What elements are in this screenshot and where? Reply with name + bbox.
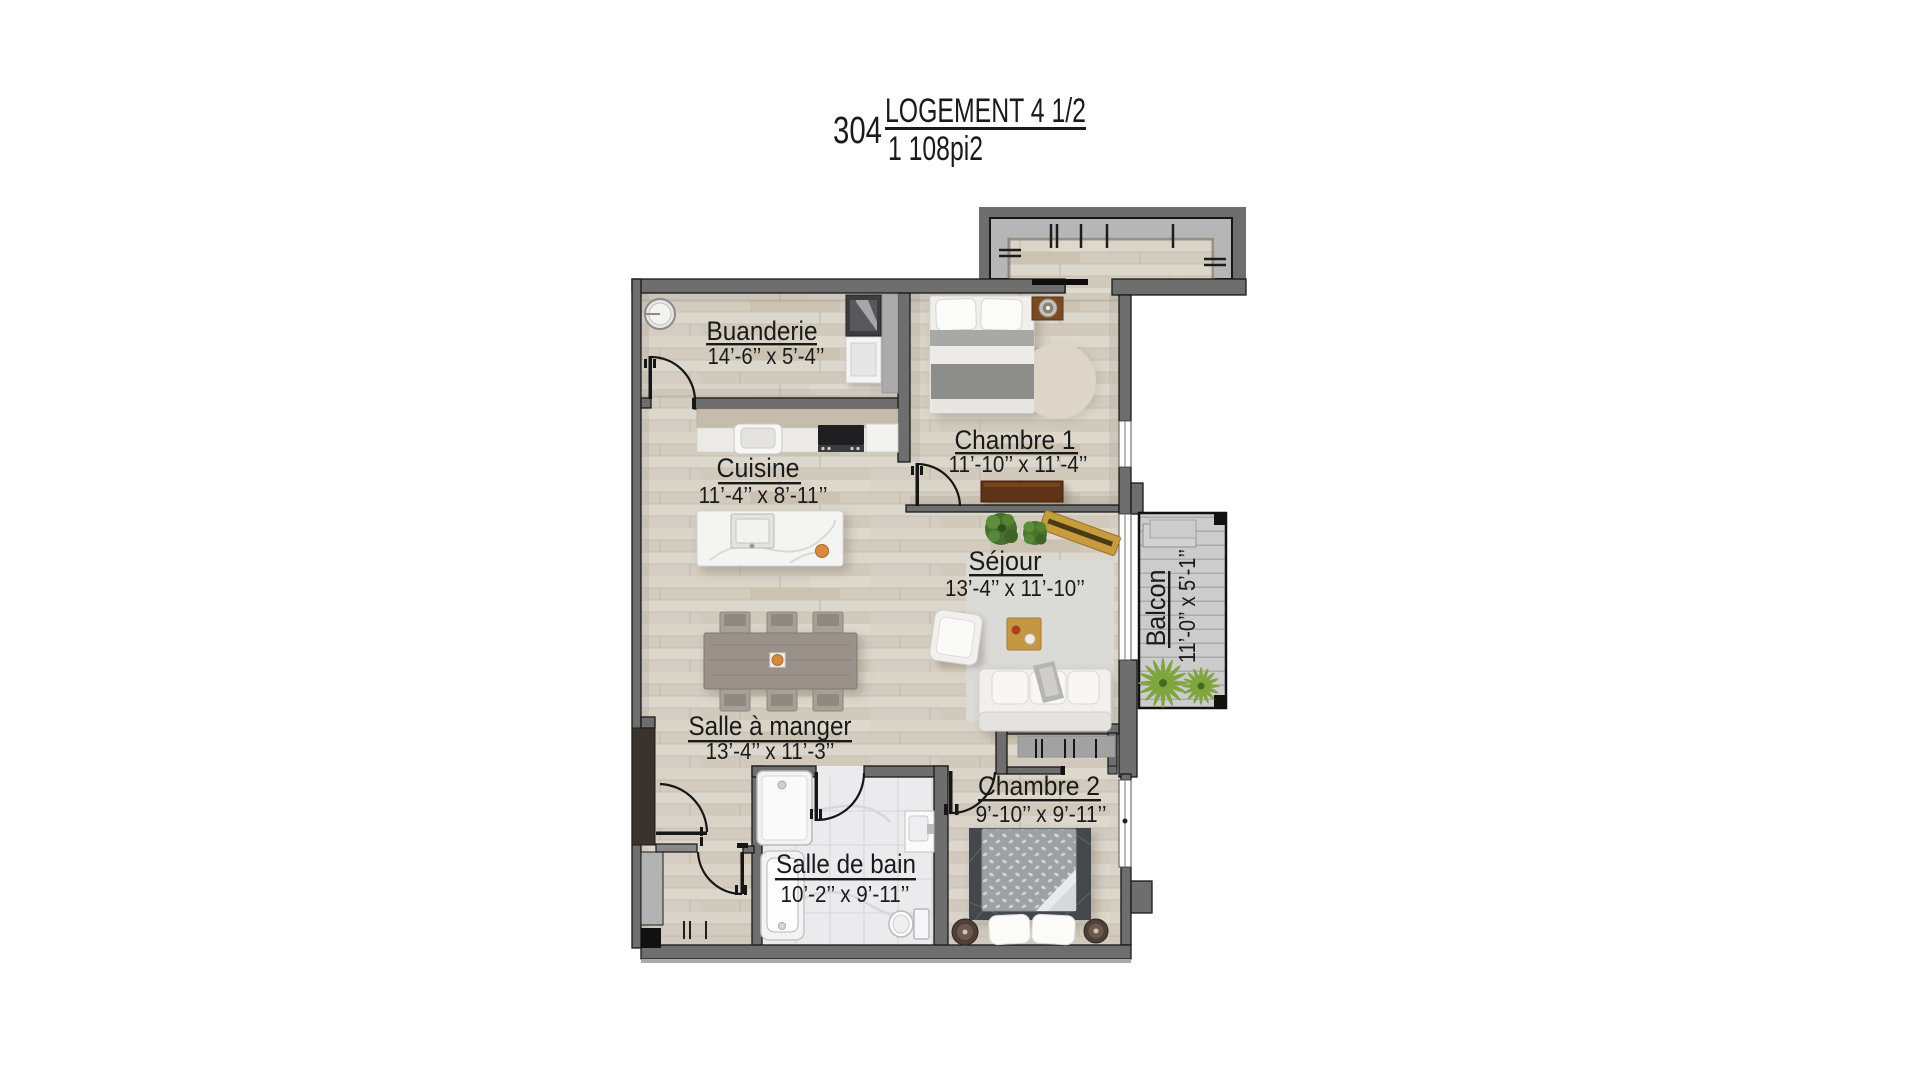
svg-text:1 108pi2: 1 108pi2 (888, 130, 983, 168)
svg-text:14’-6’’ x 5’-4’’: 14’-6’’ x 5’-4’’ (708, 343, 825, 369)
svg-text:Salle de bain: Salle de bain (776, 849, 916, 879)
svg-text:9’-10’’ x 9’-11’’: 9’-10’’ x 9’-11’’ (976, 801, 1107, 827)
svg-text:Séjour: Séjour (969, 546, 1042, 576)
svg-text:11’-4’’ x 8’-11’’: 11’-4’’ x 8’-11’’ (699, 482, 828, 508)
svg-text:Buanderie: Buanderie (707, 316, 818, 346)
svg-text:304: 304 (833, 110, 882, 152)
svg-text:13’-4’’ x 11’-10’’: 13’-4’’ x 11’-10’’ (945, 575, 1085, 601)
svg-text:Salle à manger: Salle à manger (689, 711, 852, 741)
svg-text:13’-4’’ x 11’-3’’: 13’-4’’ x 11’-3’’ (706, 738, 835, 764)
svg-text:LOGEMENT 4 1/2: LOGEMENT 4 1/2 (885, 92, 1086, 130)
svg-text:10’-2’’ x 9’-11’’: 10’-2’’ x 9’-11’’ (781, 881, 910, 907)
svg-text:11’-10’’ x 11’-4’’: 11’-10’’ x 11’-4’’ (949, 451, 1088, 477)
svg-text:Cuisine: Cuisine (717, 453, 800, 483)
svg-text:Chambre 2: Chambre 2 (978, 771, 1100, 801)
svg-text:11’-0’’ x 5’-1’’: 11’-0’’ x 5’-1’’ (1174, 549, 1200, 663)
svg-text:Balcon: Balcon (1141, 570, 1171, 647)
